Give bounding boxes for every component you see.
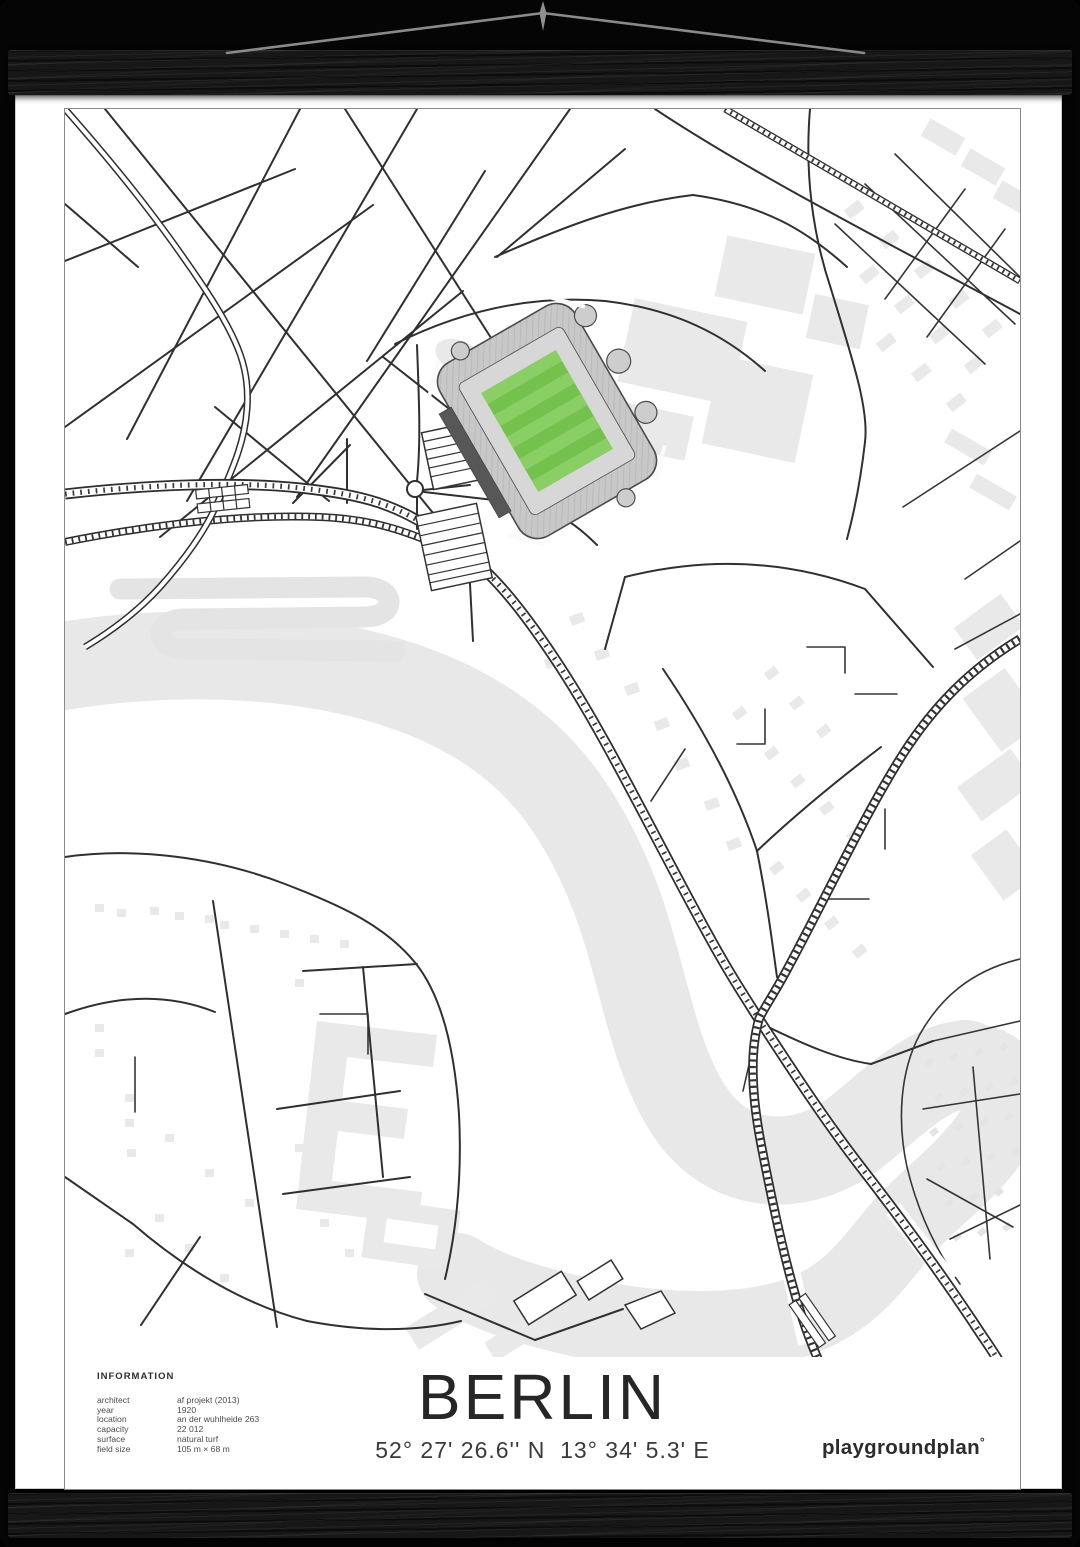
brand-name: playgroundplan: [822, 1436, 980, 1459]
brand-logo: playgroundplan°: [822, 1435, 985, 1460]
tram-platforms: [196, 485, 250, 513]
loop-track: [120, 587, 395, 651]
brand-degree-mark: °: [980, 1435, 985, 1449]
railway-left: [65, 516, 433, 543]
map-graphic: [65, 109, 1020, 1487]
map-frame: INFORMATION architect af projekt (2013) …: [64, 108, 1021, 1490]
river: [65, 655, 1006, 1331]
roundabout: [407, 481, 423, 497]
bottom-rail: [8, 1493, 1072, 1538]
poster-product-photo: INFORMATION architect af projekt (2013) …: [0, 0, 1080, 1547]
poster-sheet: INFORMATION architect af projekt (2013) …: [15, 95, 1062, 1489]
hanging-string: [0, 0, 1080, 120]
nail-icon: [540, 1, 547, 31]
double-road-topleft: [65, 109, 248, 647]
city-title: BERLIN: [65, 1365, 1020, 1429]
